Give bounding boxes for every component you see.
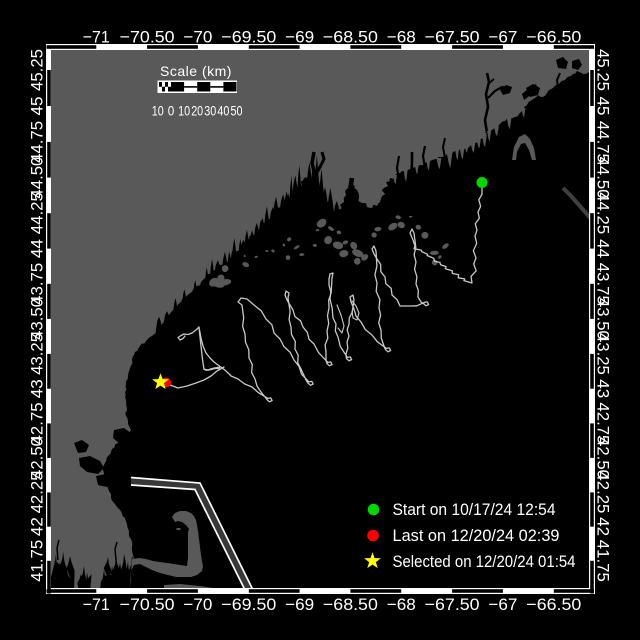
svg-text:42.25: 42.25: [594, 471, 613, 513]
svg-text:45: 45: [28, 97, 47, 116]
svg-text:45.25: 45.25: [28, 49, 47, 91]
svg-text:44.25: 44.25: [594, 192, 613, 234]
svg-text:−70.50: −70.50: [120, 28, 175, 47]
svg-text:43.25: 43.25: [28, 333, 47, 375]
svg-text:10: 10: [178, 104, 190, 119]
svg-text:42: 42: [28, 517, 47, 536]
svg-text:45: 45: [594, 97, 613, 116]
svg-text:−71: −71: [83, 28, 110, 47]
svg-text:−70.50: −70.50: [120, 595, 175, 614]
svg-text:10: 10: [152, 104, 164, 119]
svg-text:50: 50: [231, 104, 243, 119]
svg-text:−68: −68: [387, 595, 416, 614]
svg-text:42: 42: [594, 517, 613, 536]
svg-text:−69.50: −69.50: [221, 595, 276, 614]
svg-text:43: 43: [594, 379, 613, 398]
svg-text:−68.50: −68.50: [323, 595, 378, 614]
svg-text:43: 43: [28, 379, 47, 398]
svg-text:−67.50: −67.50: [425, 595, 480, 614]
svg-text:−71: −71: [83, 595, 110, 614]
svg-text:Scale (km): Scale (km): [160, 63, 232, 79]
svg-text:−67.50: −67.50: [425, 28, 480, 47]
svg-text:0: 0: [168, 104, 175, 119]
svg-text:−69: −69: [285, 28, 314, 47]
svg-text:30: 30: [204, 104, 216, 119]
svg-text:42.25: 42.25: [28, 471, 47, 513]
svg-text:45.25: 45.25: [594, 49, 613, 91]
svg-text:Start on 10/17/24 12:54: Start on 10/17/24 12:54: [393, 501, 556, 519]
svg-text:43.25: 43.25: [594, 333, 613, 375]
svg-text:−68: −68: [387, 28, 416, 47]
svg-text:44: 44: [28, 239, 47, 258]
svg-text:−70: −70: [183, 28, 212, 47]
svg-text:40: 40: [217, 104, 229, 119]
svg-text:20: 20: [191, 104, 203, 119]
svg-text:−70: −70: [183, 595, 212, 614]
svg-text:44.75: 44.75: [28, 121, 47, 163]
svg-text:44: 44: [594, 239, 613, 258]
svg-text:−69.50: −69.50: [221, 28, 276, 47]
svg-text:44.25: 44.25: [28, 192, 47, 234]
svg-text:−66.50: −66.50: [526, 28, 581, 47]
svg-text:−69: −69: [285, 595, 314, 614]
svg-text:−66.50: −66.50: [526, 595, 581, 614]
svg-text:−67: −67: [488, 28, 517, 47]
svg-text:Selected on 12/20/24 01:54: Selected on 12/20/24 01:54: [393, 553, 576, 571]
svg-text:−67: −67: [488, 595, 517, 614]
svg-text:41.75: 41.75: [28, 540, 47, 582]
svg-text:−68.50: −68.50: [323, 28, 378, 47]
svg-text:Last on 12/20/24 02:39: Last on 12/20/24 02:39: [393, 527, 560, 545]
svg-text:41.75: 41.75: [594, 540, 613, 582]
